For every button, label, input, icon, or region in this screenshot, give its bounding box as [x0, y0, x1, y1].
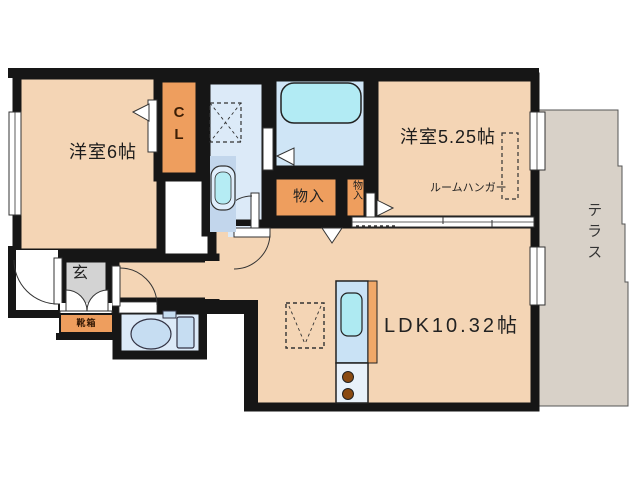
entrance-label: 玄 [72, 265, 88, 283]
bedroom1-label: 洋室6帖 [38, 142, 168, 163]
stove-burner [343, 372, 354, 383]
exterior-notch [207, 314, 244, 412]
window-ldk-right [530, 247, 545, 305]
wall-entry-bottom [8, 310, 66, 318]
floor-plan-page: 洋室6帖 C L 洋室5.25帖 ルームハンガー テラス LDK10.32帖 物… [0, 0, 640, 480]
storage-small-label: 物入 [350, 180, 362, 200]
storage-main-label: 物入 [280, 188, 338, 205]
room-hanger-label: ルームハンガー [430, 182, 507, 195]
bathtub [281, 83, 361, 123]
window-bedroom1-left [9, 112, 21, 215]
terrace-label: テラス [585, 202, 602, 265]
wall-entry-left [8, 246, 16, 314]
window-bedroom2-right [530, 112, 545, 170]
kitchen-counter-edge [368, 281, 377, 363]
closet-label-l: L [168, 124, 190, 146]
closet-label-c: C [168, 102, 190, 124]
room-bedroom1 [17, 75, 161, 253]
kitchen-sink [341, 293, 362, 336]
ldk-label: LDK10.32帖 [384, 315, 520, 338]
bedroom2-label: 洋室5.25帖 [378, 127, 518, 148]
opening-hall-ldk [205, 261, 220, 299]
stove-burner [343, 389, 354, 400]
washbasin [210, 156, 236, 232]
wall-ldk-left-lower [244, 310, 258, 411]
room-hallway [115, 258, 215, 302]
floor-plan-drawing [0, 0, 640, 480]
shoe-box-label: 靴箱 [62, 318, 111, 328]
wall-notch-top [210, 300, 258, 314]
wall-under-shoe-box [56, 333, 117, 340]
room-bedroom2 [374, 77, 535, 220]
terrace-area [539, 110, 628, 406]
